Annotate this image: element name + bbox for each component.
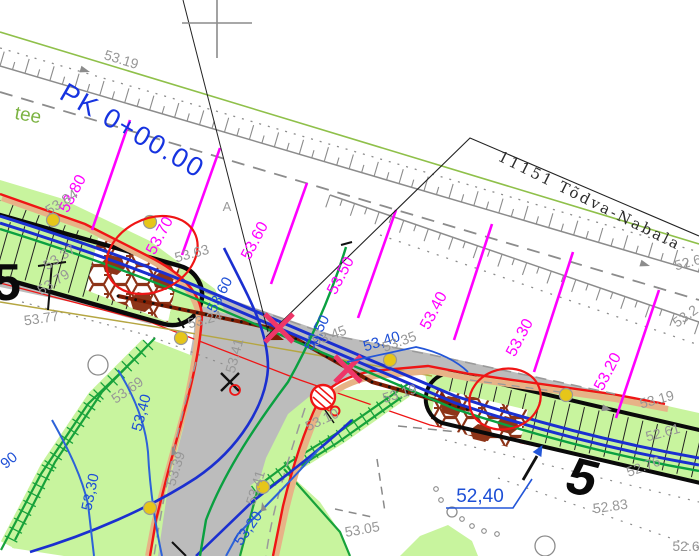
spot-height: 53.63 (173, 241, 211, 266)
local-road-label: tee (13, 103, 43, 128)
site-plan-drawing: PK 0+00.00 11151 Tõdva-Nabala tee A 5 5 … (0, 0, 699, 556)
grid-cross-icon (182, 0, 252, 58)
cross-section-label: 53.60 (238, 219, 272, 262)
verge-bottom-right (400, 525, 478, 556)
design-spot-level: 52,40 (456, 486, 504, 507)
spot-height: 53.05 (343, 518, 380, 540)
spot-height: 53.77 (23, 308, 60, 329)
zone-letter: A (223, 199, 232, 214)
cross-section-label: 53.20 (591, 350, 625, 393)
spot-height: 53.2 (669, 301, 699, 330)
road-name-label: 11151 Tõdva-Nabala (495, 147, 684, 253)
spot-height: 52.6 (672, 538, 699, 554)
detail-marker-left: 5 (0, 254, 21, 312)
station-label: PK 0+00.00 (55, 77, 210, 184)
plot-boundary-dashes (335, 426, 458, 517)
site-plan-canvas: PK 0+00.00 11151 Tõdva-Nabala tee A 5 5 … (0, 0, 699, 556)
cross-section-label: 53.40 (417, 289, 451, 332)
spot-height: 52.83 (592, 496, 629, 517)
contour-label: 90 (0, 449, 21, 473)
leader-lines (183, 0, 699, 337)
cross-section-label: 53.30 (503, 316, 537, 359)
